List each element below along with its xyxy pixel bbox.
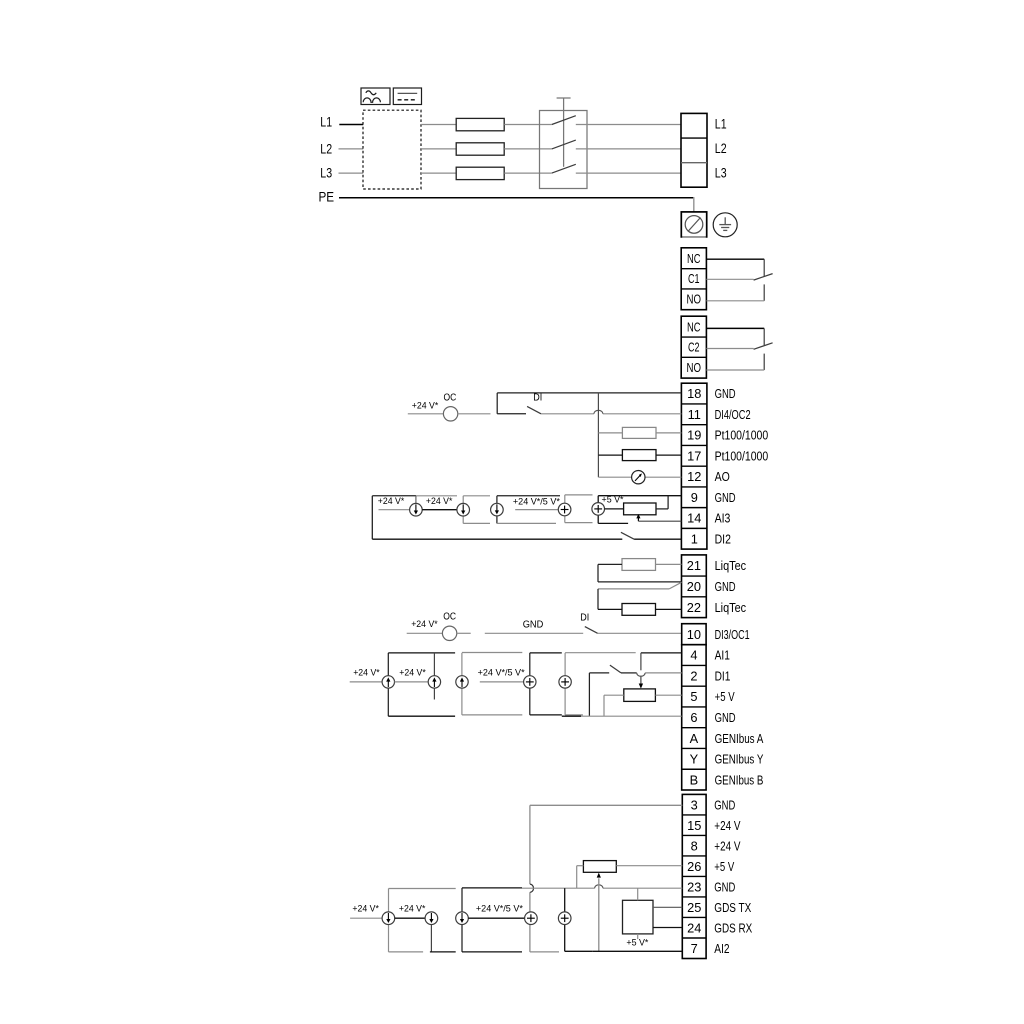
svg-text:GDS TX: GDS TX: [714, 900, 751, 915]
svg-text:18: 18: [687, 386, 701, 401]
svg-text:AI3: AI3: [715, 511, 731, 526]
svg-text:LiqTec: LiqTec: [715, 558, 747, 573]
svg-text:19: 19: [687, 428, 701, 443]
svg-text:+24 V: +24 V: [714, 838, 741, 853]
svg-text:Y: Y: [690, 752, 699, 767]
svg-text:GND: GND: [715, 490, 736, 505]
svg-text:+5 V: +5 V: [714, 859, 734, 874]
svg-text:L2: L2: [320, 141, 332, 156]
svg-text:GND: GND: [714, 797, 735, 812]
svg-text:26: 26: [687, 859, 701, 874]
svg-text:NC: NC: [687, 251, 701, 266]
svg-text:DI1: DI1: [715, 668, 731, 683]
svg-text:4: 4: [690, 648, 697, 663]
svg-text:DI: DI: [580, 613, 589, 624]
svg-text:15: 15: [687, 818, 701, 833]
svg-text:3: 3: [691, 797, 698, 812]
svg-text:Pt100/1000: Pt100/1000: [715, 448, 769, 463]
svg-text:GND: GND: [715, 710, 736, 725]
svg-text:+5 V: +5 V: [715, 689, 735, 704]
svg-text:GDS RX: GDS RX: [714, 920, 752, 935]
svg-text:6: 6: [690, 710, 697, 725]
svg-text:Pt100/1000: Pt100/1000: [715, 428, 769, 443]
svg-text:+24 V*: +24 V*: [378, 496, 405, 506]
svg-text:C1: C1: [688, 271, 700, 286]
svg-text:7: 7: [691, 941, 698, 956]
svg-text:20: 20: [687, 579, 701, 594]
svg-text:AO: AO: [715, 469, 730, 484]
svg-text:21: 21: [687, 558, 701, 573]
svg-text:OC: OC: [444, 392, 457, 403]
svg-text:25: 25: [687, 900, 701, 915]
svg-text:8: 8: [691, 838, 698, 853]
svg-text:12: 12: [687, 469, 701, 484]
svg-text:LiqTec: LiqTec: [715, 600, 747, 615]
svg-text:+24 V*/5 V*: +24 V*/5 V*: [476, 904, 523, 914]
svg-text:NO: NO: [687, 360, 702, 375]
svg-text:+24 V*/5 V*: +24 V*/5 V*: [478, 667, 525, 677]
svg-text:23: 23: [687, 879, 701, 894]
svg-text:L3: L3: [715, 166, 727, 181]
svg-text:5: 5: [690, 689, 697, 704]
svg-text:17: 17: [687, 448, 701, 463]
svg-text:AI1: AI1: [715, 648, 730, 663]
svg-text:L1: L1: [715, 116, 727, 131]
svg-text:+24 V*: +24 V*: [399, 667, 426, 677]
svg-text:L3: L3: [320, 166, 332, 181]
svg-text:A: A: [690, 731, 699, 746]
svg-text:GND: GND: [714, 879, 735, 894]
svg-text:DI2: DI2: [715, 531, 731, 546]
svg-text:AI2: AI2: [714, 941, 729, 956]
svg-text:+24 V*: +24 V*: [412, 401, 439, 411]
svg-text:+24 V*: +24 V*: [399, 904, 426, 914]
svg-text:DI: DI: [533, 392, 542, 403]
svg-text:2: 2: [690, 668, 697, 683]
svg-text:+24 V*: +24 V*: [426, 496, 453, 506]
svg-text:+24 V: +24 V: [714, 818, 741, 833]
svg-text:DI4/OC2: DI4/OC2: [715, 407, 751, 422]
svg-text:+5 V*: +5 V*: [602, 495, 624, 505]
svg-text:GENIbus A: GENIbus A: [715, 731, 764, 746]
svg-text:10: 10: [687, 627, 701, 642]
svg-text:B: B: [690, 772, 699, 787]
svg-text:OC: OC: [443, 612, 456, 623]
svg-text:L1: L1: [320, 115, 332, 130]
svg-text:+24 V*: +24 V*: [352, 904, 379, 914]
svg-text:GND: GND: [715, 386, 736, 401]
svg-text:GENIbus Y: GENIbus Y: [715, 752, 764, 767]
svg-text:L2: L2: [715, 141, 727, 156]
svg-text:GND: GND: [715, 579, 736, 594]
svg-text:+24 V*: +24 V*: [411, 619, 438, 629]
svg-text:C2: C2: [688, 340, 700, 355]
svg-text:24: 24: [687, 920, 701, 935]
svg-text:1: 1: [691, 531, 698, 546]
svg-text:NC: NC: [687, 319, 701, 334]
svg-text:NO: NO: [687, 292, 702, 307]
svg-text:+5 V*: +5 V*: [626, 938, 648, 948]
svg-text:PE: PE: [319, 189, 335, 204]
svg-text:14: 14: [687, 511, 701, 526]
svg-text:GENIbus B: GENIbus B: [715, 772, 764, 787]
svg-text:22: 22: [687, 600, 701, 615]
svg-text:DI3/OC1: DI3/OC1: [715, 627, 750, 642]
svg-text:+24 V*/5 V*: +24 V*/5 V*: [513, 496, 560, 506]
svg-text:9: 9: [691, 490, 698, 505]
svg-text:11: 11: [688, 407, 701, 422]
svg-text:+24 V*: +24 V*: [353, 667, 380, 677]
svg-text:GND: GND: [523, 619, 544, 630]
